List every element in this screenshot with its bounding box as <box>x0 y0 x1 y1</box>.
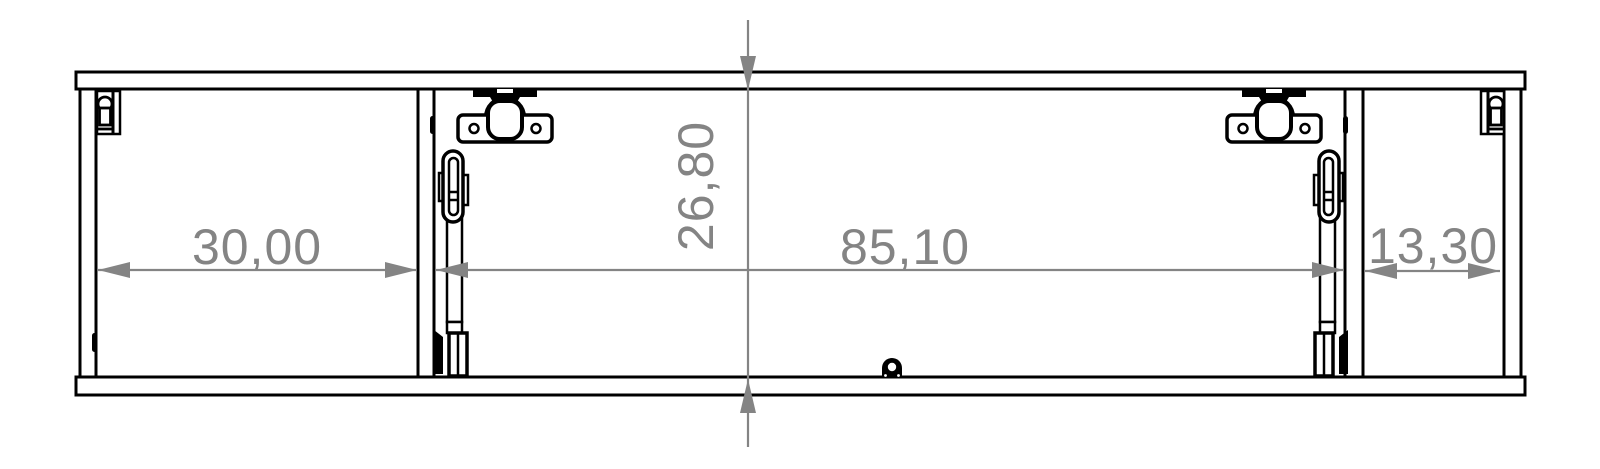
dimension-label-center-width: 85,10 <box>840 219 970 275</box>
bottom-catch <box>882 358 902 378</box>
dimension-right-compartment: 13,30 <box>1365 218 1500 279</box>
dimension-center-compartment: 85,10 <box>436 219 1344 278</box>
arrowhead-left-icon <box>98 262 130 278</box>
technical-drawing-canvas: 30,00 85,10 13,30 26,80 <box>0 0 1600 469</box>
left-side-cam-mark <box>92 333 97 352</box>
bottom-panel <box>76 377 1525 395</box>
right-lift-support <box>1314 151 1348 376</box>
right-hinge <box>1227 89 1321 142</box>
left-hinge <box>458 89 552 142</box>
dimension-label-height: 26,80 <box>668 121 724 251</box>
left-partition-cam-mark <box>430 116 435 134</box>
left-wall-bracket <box>97 91 120 134</box>
right-partition-cam-mark <box>1343 116 1348 134</box>
right-wall-bracket <box>1481 91 1504 134</box>
top-panel <box>76 72 1525 89</box>
dimension-label-right-width: 13,30 <box>1368 218 1498 274</box>
dimension-label-left-width: 30,00 <box>192 219 322 275</box>
arrowhead-right-icon <box>385 262 417 278</box>
dimension-left-compartment: 30,00 <box>98 219 417 278</box>
right-side-panel <box>1504 89 1521 379</box>
